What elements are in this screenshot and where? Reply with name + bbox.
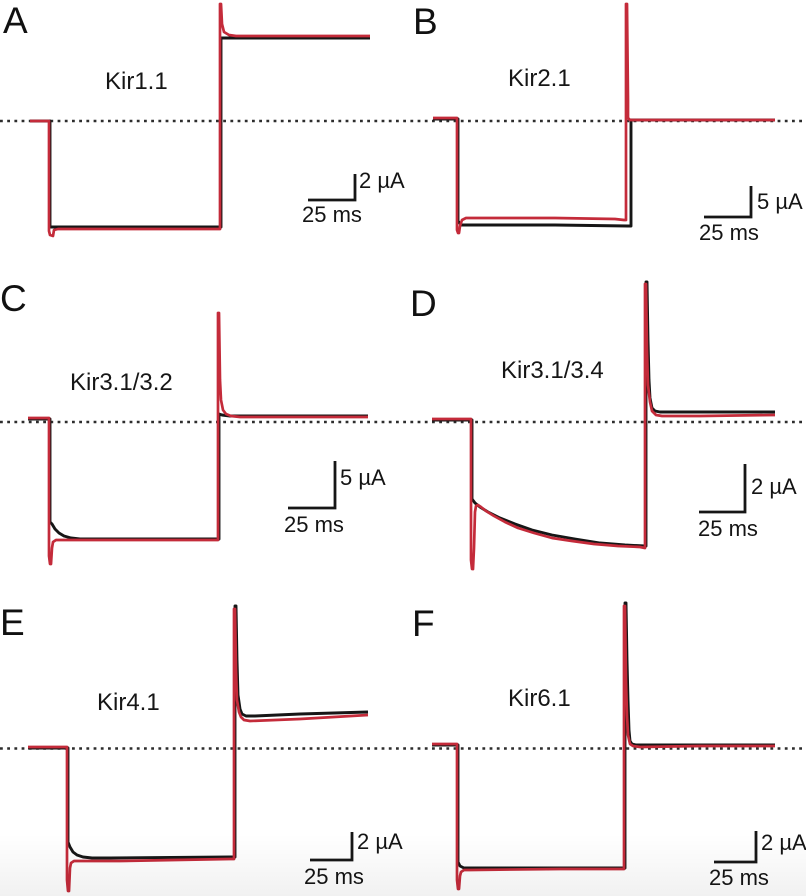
panel-title-d: Kir3.1/3.4 [501,359,604,383]
panel-label-f: F [412,605,435,642]
scale-time-label-e: 25 ms [304,866,364,888]
traces-svg [0,0,806,896]
trace-black-e [28,606,368,858]
scale-bar-b [704,186,751,217]
panel-label-e: E [0,604,25,641]
figure-canvas: A Kir1.1 2 µA 25 ms B Kir2.1 5 µA 25 ms … [0,0,806,896]
trace-red-e [28,609,368,891]
panel-label-a: A [3,2,28,39]
trace-black-d [432,282,775,546]
scale-time-label-f: 25 ms [709,867,769,889]
panel-title-a: Kir1.1 [105,70,168,94]
panel-title-f: Kir6.1 [508,687,571,711]
scale-bar-c [288,461,335,508]
scale-current-label-e: 2 µA [357,831,403,853]
trace-black-f [432,603,775,868]
scale-bar-f [714,831,756,862]
panel-title-c: Kir3.1/3.2 [70,371,173,395]
scale-current-label-c: 5 µA [340,467,386,489]
panel-label-b: B [413,3,438,40]
scale-bar-e [310,832,352,860]
trace-black-b [433,119,775,226]
scale-bar-a [308,174,355,200]
panel-label-c: C [0,280,27,317]
panel-title-b: Kir2.1 [508,67,571,91]
scale-current-label-d: 2 µA [751,476,797,498]
scale-time-label-b: 25 ms [699,222,759,244]
panel-title-e: Kir4.1 [97,691,160,715]
scale-time-label-c: 25 ms [284,514,344,536]
scale-current-label-f: 2 µA [761,832,806,854]
panel-label-d: D [410,285,437,322]
scale-time-label-d: 25 ms [698,518,758,540]
scale-current-label-a: 2 µA [359,170,405,192]
trace-red-b [433,4,775,233]
scale-current-label-b: 5 µA [757,191,803,213]
scale-time-label-a: 25 ms [302,204,362,226]
scale-bar-d [699,464,745,512]
